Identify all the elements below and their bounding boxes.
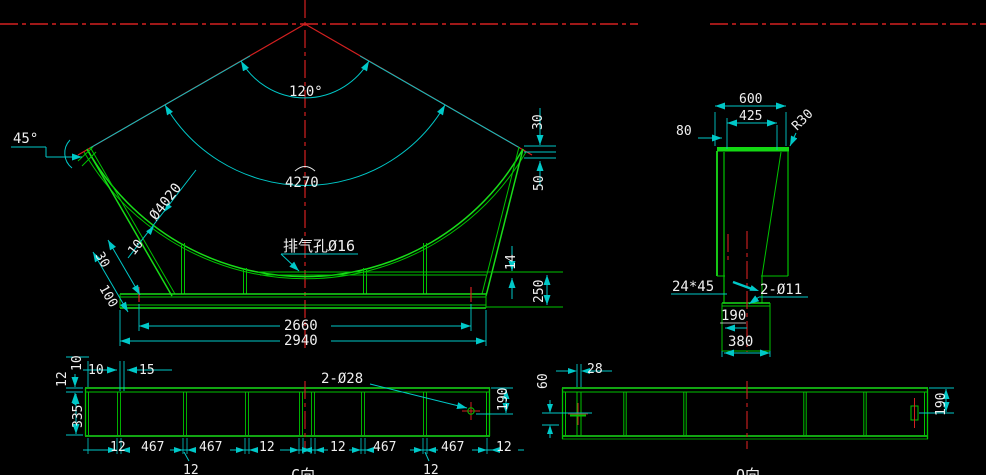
svg-text:467: 467 xyxy=(373,440,396,455)
dim-120: 120° xyxy=(289,84,323,100)
beam-q-ribs xyxy=(577,392,866,436)
side-top-bar xyxy=(717,147,789,152)
view-label-q: Q向 xyxy=(736,466,760,475)
svg-text:60: 60 xyxy=(536,373,551,389)
svg-text:467: 467 xyxy=(141,440,164,455)
front-view: 120° 4270 xyxy=(11,24,563,349)
svg-text:12: 12 xyxy=(183,463,199,475)
view-label-c: C向 xyxy=(291,466,315,475)
svg-text:12: 12 xyxy=(423,463,439,475)
svg-text:2-Ø11: 2-Ø11 xyxy=(760,282,802,298)
vent-hole-label: 排气孔Ø16 xyxy=(281,237,358,271)
svg-text:14: 14 xyxy=(504,254,519,270)
dim-190-beam-c: 190 xyxy=(476,388,513,414)
svg-text:380: 380 xyxy=(728,334,753,350)
dim-tip-30-50: 30 50 xyxy=(524,108,556,191)
dim-2xd11: 2-Ø11 xyxy=(749,282,808,304)
svg-text:100: 100 xyxy=(96,283,121,311)
beam-c-hole xyxy=(462,402,480,420)
svg-text:190: 190 xyxy=(721,308,746,324)
svg-text:10: 10 xyxy=(70,355,85,371)
svg-text:2-Ø28: 2-Ø28 xyxy=(321,371,363,387)
beam-c-ribs xyxy=(118,392,427,436)
dim-425: 425 xyxy=(727,109,777,150)
svg-text:467: 467 xyxy=(441,440,464,455)
svg-text:190: 190 xyxy=(934,393,949,416)
beam-q-left-hole xyxy=(568,403,588,425)
svg-text:28: 28 xyxy=(587,362,603,377)
svg-text:15: 15 xyxy=(139,363,155,378)
svg-text:12: 12 xyxy=(496,440,512,455)
svg-text:排气孔Ø16: 排气孔Ø16 xyxy=(283,237,355,255)
svg-text:10: 10 xyxy=(88,363,104,378)
svg-text:12: 12 xyxy=(110,440,126,455)
dim-60: 60 xyxy=(536,373,592,438)
dim-4270: 4270 xyxy=(285,175,319,191)
svg-text:335: 335 xyxy=(71,405,86,428)
dim-dia4020: 10 Ø4020 xyxy=(125,170,196,258)
svg-text:30: 30 xyxy=(531,114,546,130)
svg-text:80: 80 xyxy=(676,124,692,139)
dim-28: 28 xyxy=(556,362,612,387)
svg-text:24*45: 24*45 xyxy=(672,279,714,295)
dim-14-250: 14 250 xyxy=(504,246,547,305)
svg-text:12: 12 xyxy=(259,440,275,455)
svg-text:2660: 2660 xyxy=(284,318,318,334)
cad-canvas: 120° 4270 xyxy=(0,0,986,475)
svg-text:R30: R30 xyxy=(789,107,816,134)
beam-view-q: 28 60 190 Q向 xyxy=(536,362,954,475)
dim-r30: R30 xyxy=(789,107,816,146)
svg-text:50: 50 xyxy=(532,175,547,191)
svg-text:Ø4020: Ø4020 xyxy=(147,180,186,223)
dim-45deg: 45° xyxy=(11,131,82,168)
svg-text:600: 600 xyxy=(739,92,762,107)
svg-text:30: 30 xyxy=(92,250,113,271)
svg-text:250: 250 xyxy=(532,280,547,303)
dim-2xd28: 2-Ø28 xyxy=(321,371,467,408)
svg-text:12: 12 xyxy=(330,440,346,455)
front-base xyxy=(120,294,563,308)
svg-text:12: 12 xyxy=(55,371,70,387)
dim-190-base: 190 xyxy=(720,308,747,328)
svg-text:2940: 2940 xyxy=(284,333,318,349)
svg-text:425: 425 xyxy=(739,109,762,124)
side-view: 600 425 80 R30 24*45 2-Ø11 190 xyxy=(671,92,816,357)
svg-text:467: 467 xyxy=(199,440,222,455)
dim-380: 380 xyxy=(722,334,770,357)
beam-c-top-dims: 10 15 xyxy=(83,361,172,391)
svg-text:190: 190 xyxy=(496,388,511,411)
beam-view-c: 2-Ø28 190 10 15 10 12 xyxy=(55,355,524,475)
beam-c-left-dims: 10 12 335 xyxy=(55,355,89,435)
svg-text:45°: 45° xyxy=(13,131,38,147)
